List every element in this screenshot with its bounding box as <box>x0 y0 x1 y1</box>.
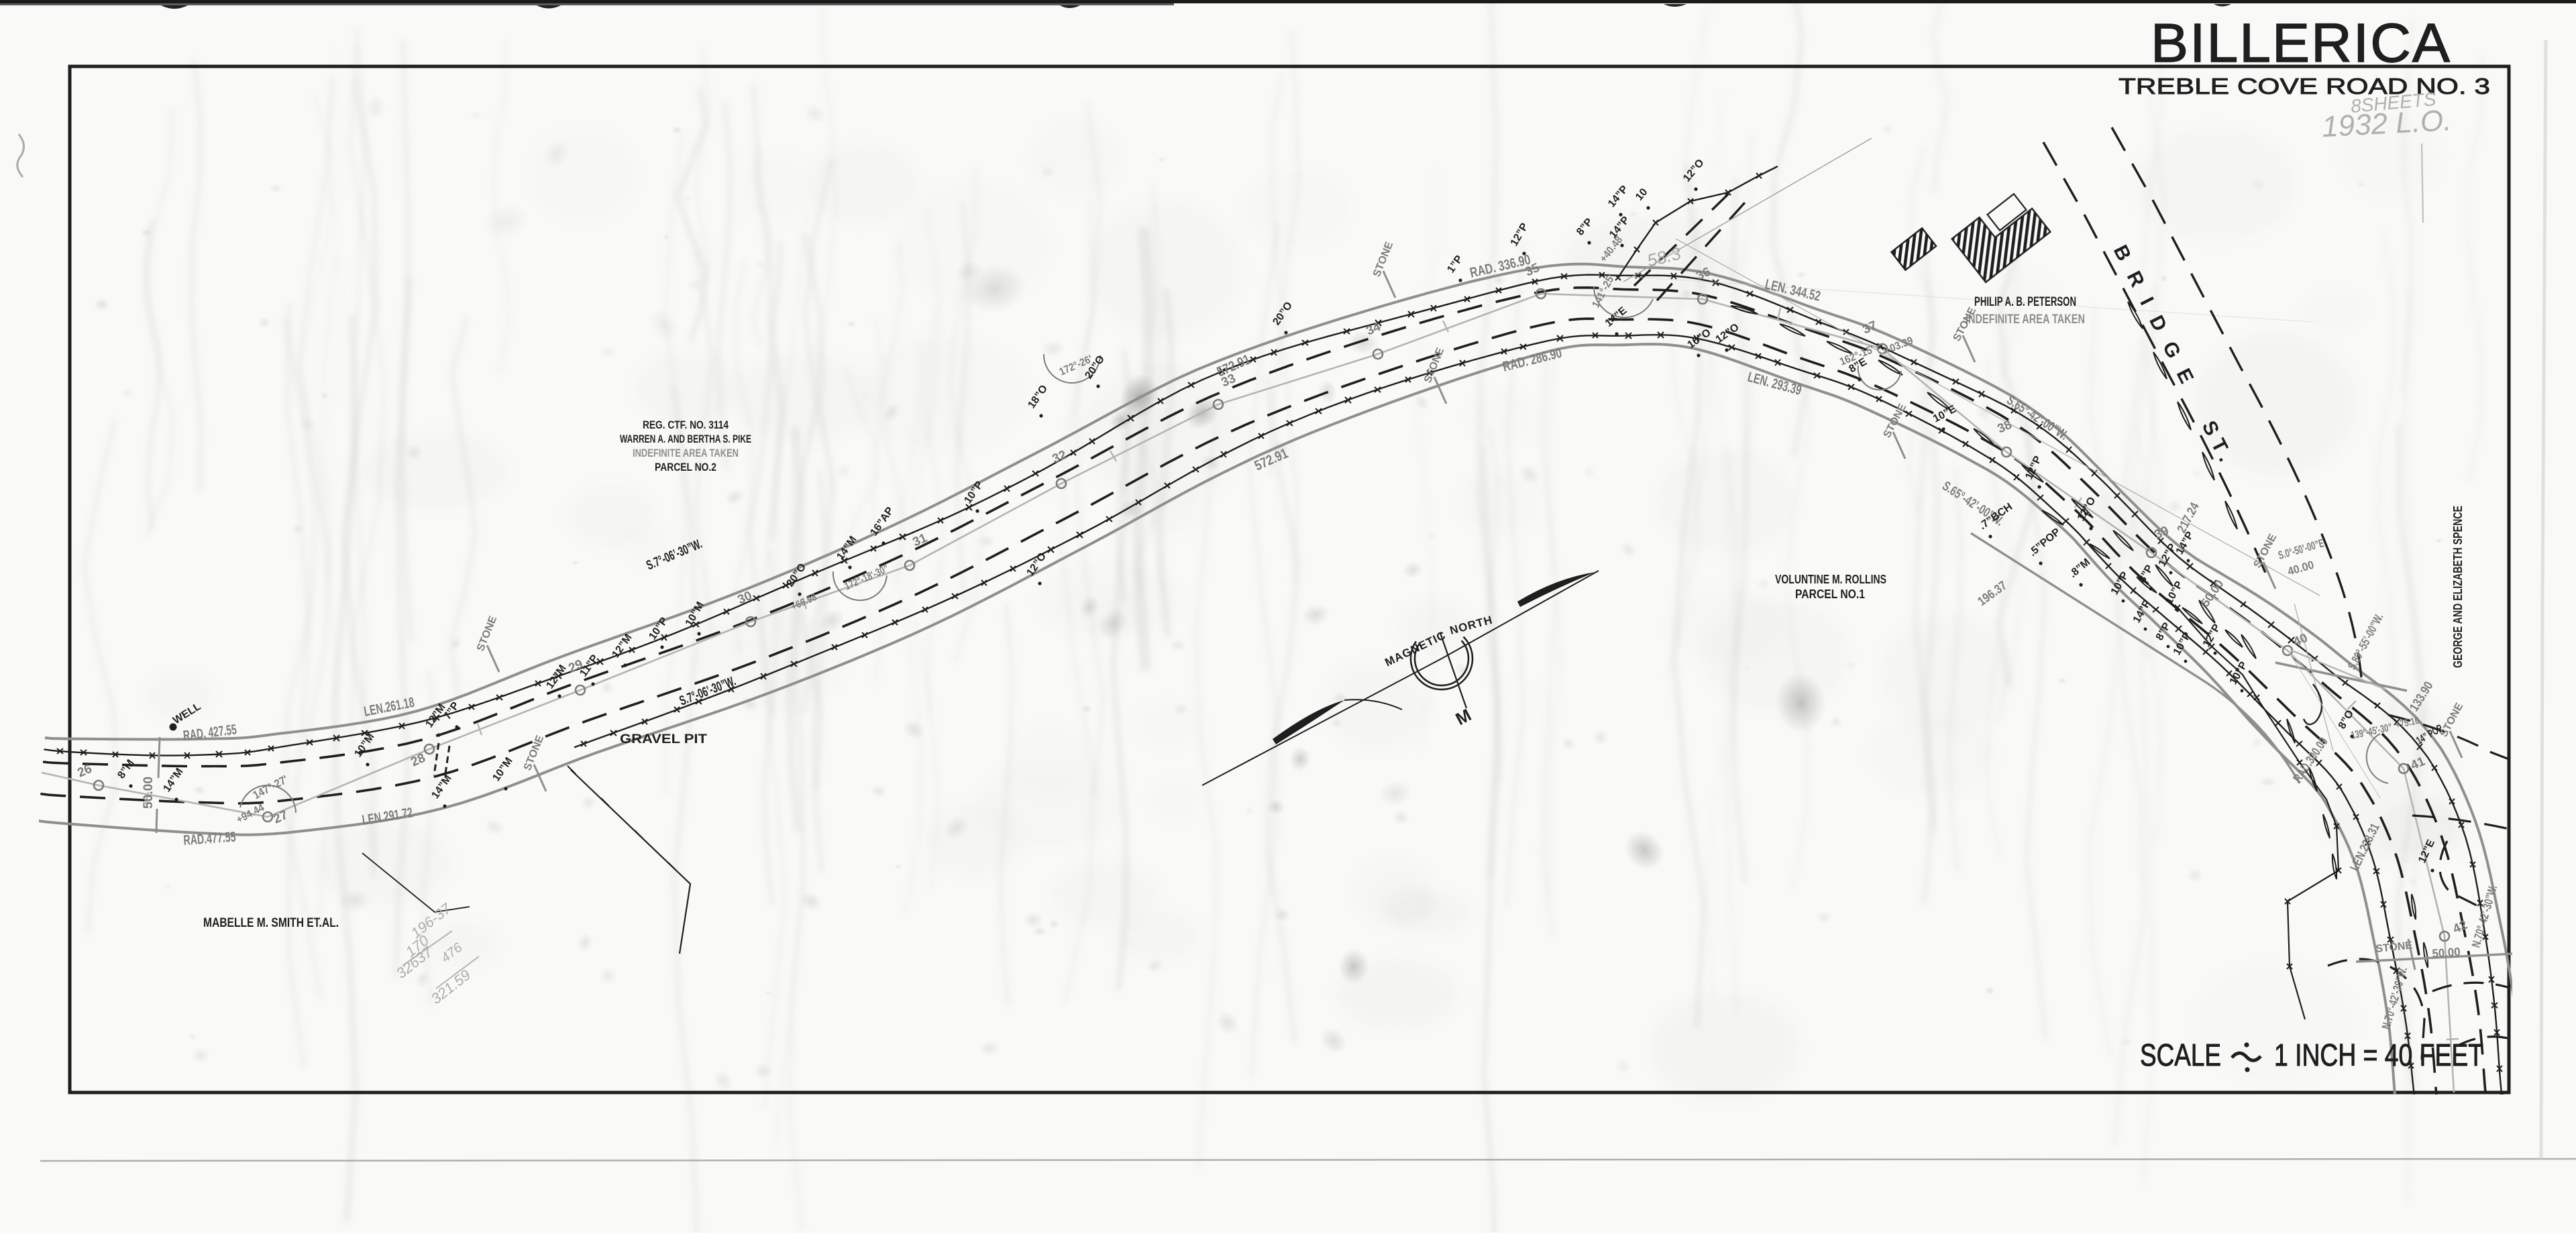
svg-text:VOLUNTINE M. ROLLINS: VOLUNTINE M. ROLLINS <box>1775 573 1886 586</box>
svg-text:PARCEL NO.1: PARCEL NO.1 <box>1795 587 1865 601</box>
svg-text:1 INCH = 40 FEET: 1 INCH = 40 FEET <box>2274 1037 2483 1072</box>
svg-text:1932 L.O.: 1932 L.O. <box>2321 104 2453 144</box>
svg-text:GEORGE AND ELIZABETH SPENCE: GEORGE AND ELIZABETH SPENCE <box>2451 506 2465 668</box>
svg-text:REG. CTF. NO. 3114: REG. CTF. NO. 3114 <box>643 418 729 431</box>
svg-text:50.00: 50.00 <box>142 777 156 809</box>
svg-text:PHILIP A. B. PETERSON: PHILIP A. B. PETERSON <box>1974 295 2076 309</box>
svg-text:PARCEL NO.2: PARCEL NO.2 <box>655 461 716 473</box>
svg-text:SCALE: SCALE <box>2140 1037 2221 1072</box>
svg-text:BILLERICA: BILLERICA <box>2151 13 2451 74</box>
svg-text:INDEFINITE AREA TAKEN: INDEFINITE AREA TAKEN <box>633 447 739 459</box>
svg-text:50.00: 50.00 <box>2432 945 2461 960</box>
svg-text:GRAVEL PIT: GRAVEL PIT <box>620 732 707 746</box>
svg-text:INDEFINITE AREA TAKEN: INDEFINITE AREA TAKEN <box>1966 313 2085 327</box>
svg-text:WARREN A. AND BERTHA S. PIKE: WARREN A. AND BERTHA S. PIKE <box>620 433 751 445</box>
svg-text:MABELLE M. SMITH ET.AL.: MABELLE M. SMITH ET.AL. <box>203 916 339 930</box>
